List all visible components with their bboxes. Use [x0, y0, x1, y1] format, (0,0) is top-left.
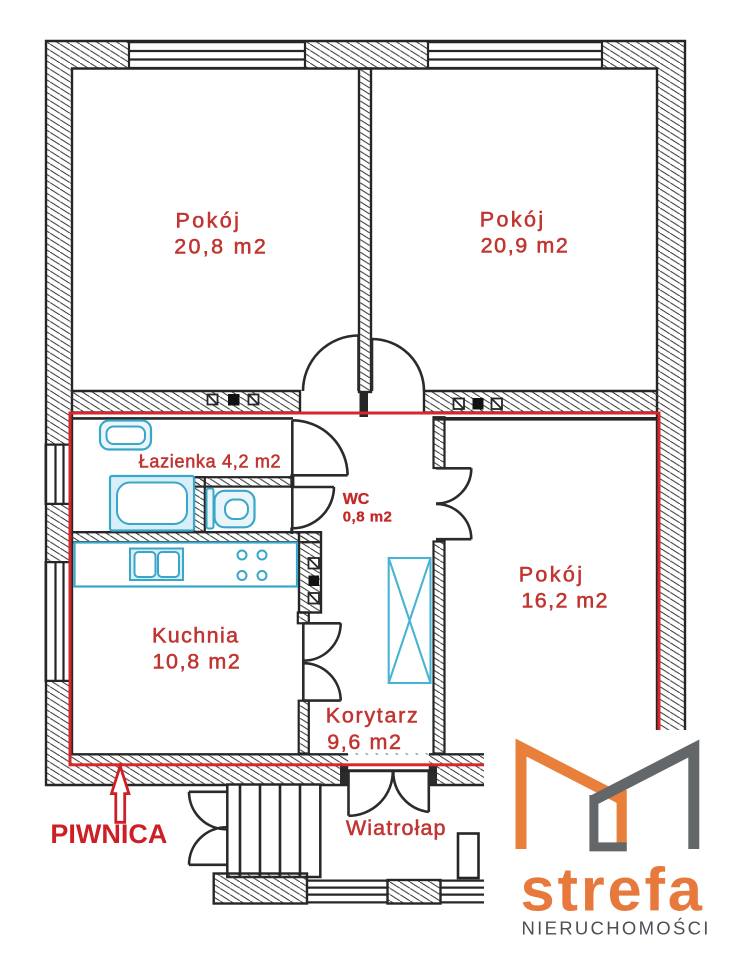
svg-text:WC: WC [343, 491, 370, 508]
svg-text:16,2 m2: 16,2 m2 [521, 588, 609, 612]
svg-text:strefa: strefa [521, 856, 705, 925]
svg-text:Korytarz: Korytarz [326, 704, 420, 728]
svg-text:Pokój: Pokój [519, 563, 585, 587]
svg-text:Pokój: Pokój [480, 208, 546, 232]
svg-text:20,8 m2: 20,8 m2 [174, 235, 268, 259]
svg-text:PIWNICA: PIWNICA [50, 819, 167, 849]
svg-text:0,8 m2: 0,8 m2 [343, 509, 393, 526]
svg-text:NIERUCHOMOŚCI: NIERUCHOMOŚCI [522, 918, 711, 939]
svg-text:Wiatrołap: Wiatrołap [346, 816, 447, 840]
svg-text:Kuchnia: Kuchnia [152, 624, 240, 648]
svg-text:Łazienka 4,2 m2: Łazienka 4,2 m2 [139, 452, 282, 472]
svg-text:9,6 m2: 9,6 m2 [327, 730, 402, 754]
svg-text:20,9 m2: 20,9 m2 [481, 234, 570, 258]
svg-text:Pokój: Pokój [176, 209, 242, 233]
svg-text:10,8 m2: 10,8 m2 [153, 650, 242, 674]
